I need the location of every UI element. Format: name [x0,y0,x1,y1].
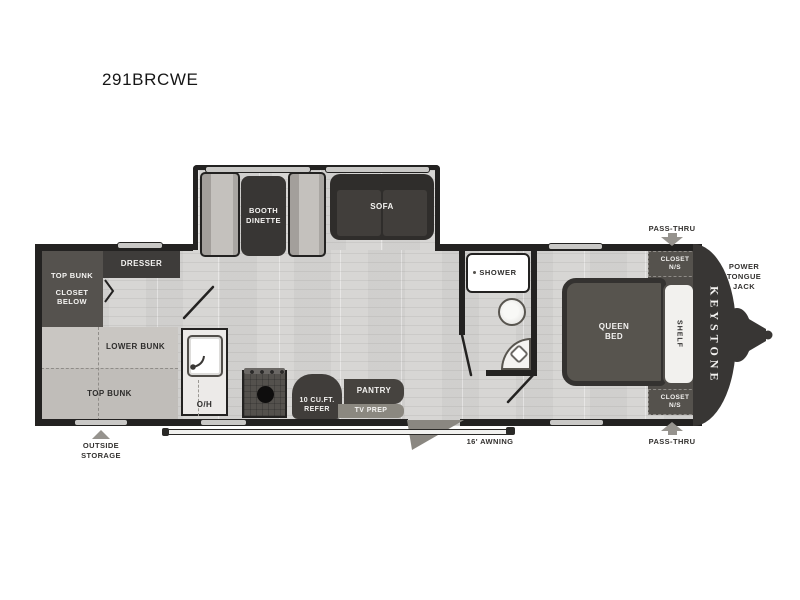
top-bunk-upper-label: TOP BUNK [51,271,93,281]
dinette-bench-left [200,172,240,257]
lower-bunk: LOWER BUNK [41,327,178,368]
tv-prep-label: TV PREP [355,406,388,415]
closet-ns-top-label: CLOSET N/S [661,256,690,273]
window [549,419,604,426]
sofa-label: SOFA [370,202,393,212]
top-bunk-closet: TOP BUNK CLOSET BELOW [41,251,103,327]
top-bunk-lower-label: TOP BUNK [87,389,132,399]
stove [242,370,287,418]
tongue-jack-tip [764,331,773,340]
window [117,242,163,249]
window [74,419,128,426]
stove-knobs [244,368,285,374]
closet-ns-bottom-label: CLOSET N/S [661,394,690,411]
awning-end-right [506,427,515,435]
wall-top-left [35,244,193,251]
kitchen-counter: O/H [181,328,228,416]
shower-head-icon [473,271,476,274]
dresser: DRESSER [103,251,180,278]
sofa: SOFA [330,174,434,240]
awning-bar [166,429,512,435]
bathroom-wall-right [531,251,537,376]
bathroom-sink [509,344,529,364]
pass-thru-bottom-arrow-stem [668,431,677,435]
bunk-divider-line [98,327,99,421]
shelf-label: SHELF [674,320,683,348]
window [548,243,603,250]
power-tongue-jack-label: POWER TONGUE JACK [712,262,776,291]
outside-storage-label: OUTSIDE STORAGE [68,441,134,461]
window [200,419,247,426]
lower-bunk-label: LOWER BUNK [106,342,165,352]
page-title: 291BRCWE [102,70,198,90]
top-bunk-lower: TOP BUNK [41,368,178,420]
refrigerator-label: 10 CU.FT. REFER [299,396,334,414]
outside-storage-arrow-icon [92,430,110,439]
awning-end-left [162,428,169,436]
floorplan: 291BRCWE BOOTH DINETTE SOFA DRESSER TOP … [0,0,800,600]
tongue-jack-cone [737,312,766,358]
bedroom-shelf: SHELF [663,283,695,385]
wall-rear [35,244,42,426]
booth-dinette-label: BOOTH DINETTE [246,206,281,226]
pass-thru-bottom-arrow-icon [661,422,683,431]
dinette-table: BOOTH DINETTE [241,176,286,256]
queen-bed-label: QUEEN BED [599,322,629,343]
keystone-logo-text: KEYSTONE [707,286,722,384]
dinette-bench-right [288,172,326,257]
refrigerator: 10 CU.FT. REFER [292,374,342,419]
stove-pot [257,386,274,403]
overhead-cabinet-label: O/H [197,400,212,410]
slide-topper-left [205,166,311,173]
tv-prep: TV PREP [338,404,404,418]
bunk-divider-line [41,368,178,369]
dresser-label: DRESSER [121,259,162,269]
pantry: PANTRY [344,379,404,404]
slide-topper-right [325,166,430,173]
closet-below-label: CLOSET BELOW [56,288,89,308]
bathroom-wall-bottom [486,370,537,376]
pantry-label: PANTRY [357,386,391,396]
toilet [498,298,526,326]
pass-thru-bottom-label: PASS-THRU [630,437,714,447]
shower-label: SHOWER [479,268,516,278]
awning-label: 16' AWNING [452,437,528,447]
shower: SHOWER [466,253,530,293]
kitchen-sink [187,335,223,377]
pass-thru-top-arrow-icon [661,237,683,246]
bathroom-wall-left [459,251,465,335]
queen-bed: QUEEN BED [562,278,666,386]
